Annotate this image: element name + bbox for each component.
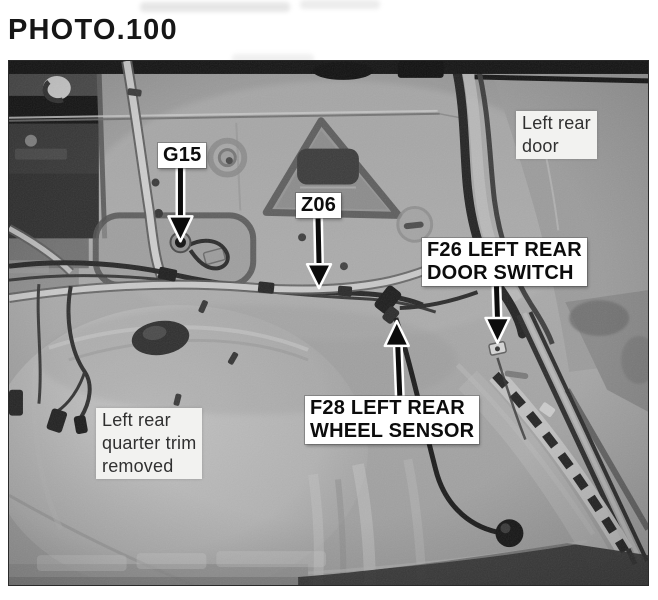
callout-f26-line1: F26 LEFT REAR (427, 239, 582, 262)
note-quarter-trim-line3: removed (102, 455, 196, 478)
callout-f28-line1: F28 LEFT REAR (310, 397, 474, 420)
note-left-rear-door-line2: door (522, 135, 591, 158)
photo-figure: G15 Z06 F26 LEFT REAR DOOR SWITCH F28 LE… (8, 60, 649, 586)
callout-z06-label: Z06 (301, 194, 336, 217)
print-bleed-artifact (300, 0, 380, 9)
callout-f28-left-rear-wheel-sensor: F28 LEFT REAR WHEEL SENSOR (305, 396, 479, 444)
note-quarter-trim-line1: Left rear (102, 409, 196, 432)
print-bleed-artifact (140, 2, 290, 12)
note-quarter-trim-line2: quarter trim (102, 432, 196, 455)
callout-f26-line2: DOOR SWITCH (427, 262, 582, 285)
note-left-rear-door: Left rear door (516, 111, 597, 159)
note-quarter-trim-removed: Left rear quarter trim removed (96, 408, 202, 479)
callout-f26-left-rear-door-switch: F26 LEFT REAR DOOR SWITCH (422, 238, 587, 286)
callout-g15-label: G15 (163, 144, 201, 167)
note-left-rear-door-line1: Left rear (522, 112, 591, 135)
callout-z06: Z06 (296, 193, 341, 218)
callout-g15: G15 (158, 143, 206, 168)
callout-f28-line2: WHEEL SENSOR (310, 420, 474, 443)
photo-title: PHOTO.100 (8, 14, 178, 47)
